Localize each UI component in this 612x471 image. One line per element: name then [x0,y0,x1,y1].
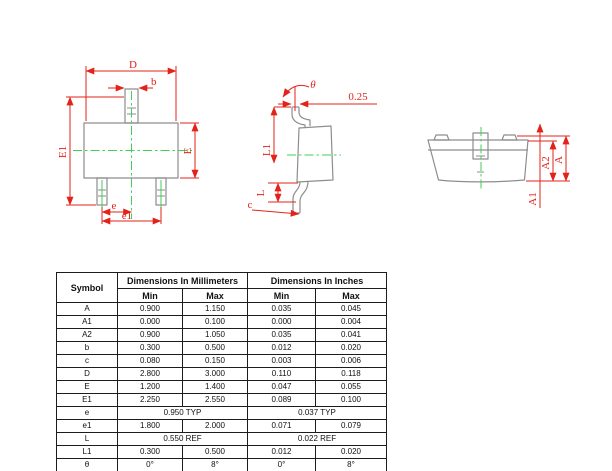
dim-label-theta: θ [310,79,316,91]
table-cell: c [57,355,118,368]
table-row: c0.0800.1500.0030.006 [57,355,387,368]
table-cell: 0.041 [316,329,387,342]
table-cell: 2.800 [118,368,183,381]
table-header-inches: Dimensions In Inches [248,273,387,289]
table-row: e11.8002.0000.0710.079 [57,420,387,433]
table-cell: 0.900 [118,303,183,316]
dim-label-b: b [151,76,157,88]
table-cell: 3.000 [183,368,248,381]
table-cell: 0.089 [248,394,316,407]
table-cell: A1 [57,316,118,329]
table-cell: 0.004 [316,316,387,329]
top-view-centerlines [73,91,192,219]
dim-label-e1: e1 [122,210,132,222]
table-cell: 0.012 [248,342,316,355]
table-cell: 0.118 [316,368,387,381]
dim-label-offset: 0.25 [348,91,368,103]
table-row: L10.3000.5000.0120.020 [57,446,387,459]
dim-L: L [255,183,298,202]
table-row: A20.9001.0500.0350.041 [57,329,387,342]
dim-label-D: D [129,59,137,71]
table-row: A0.9001.1500.0350.045 [57,303,387,316]
table-cell: 0.000 [248,316,316,329]
table-cell: A [57,303,118,316]
table-cell: 0.100 [183,316,248,329]
table-cell: 0.071 [248,420,316,433]
table-cell: 0.500 [183,342,248,355]
table-cell: 0.020 [316,446,387,459]
table-cell: b [57,342,118,355]
table-cell: 0.079 [316,420,387,433]
table-cell: 1.400 [183,381,248,394]
table-cell: 0.550 REF [118,433,248,446]
table-cell: 2.250 [118,394,183,407]
dim-L1: L1 [261,107,291,163]
table-cell: 1.150 [183,303,248,316]
table-cell: 1.800 [118,420,183,433]
table-row: A10.0000.1000.0000.004 [57,316,387,329]
table-cell: L [57,433,118,446]
table-header-in-min: Min [248,289,316,303]
table-cell: 0.020 [316,342,387,355]
dim-offset-025: 0.25 [278,91,377,104]
table-cell: 0.000 [118,316,183,329]
dim-label-E: E [182,147,194,154]
top-view: D b E1 E e [57,59,199,224]
table-cell: 0° [248,459,316,471]
dim-label-L1: L1 [261,144,273,156]
front-view: A1 A2 A [428,124,570,208]
side-view-package-outline [292,107,333,213]
table-cell: θ [57,459,118,471]
table-cell: 0° [118,459,183,471]
table-cell: A2 [57,329,118,342]
dimension-table: Symbol Dimensions In Millimeters Dimensi… [56,272,387,471]
table-cell: 0.035 [248,303,316,316]
dim-E: E [180,123,199,178]
dim-theta: θ [283,79,316,111]
dim-label-A: A [553,156,565,164]
dim-b: b [108,76,157,88]
table-cell: D [57,368,118,381]
table-cell: 0.300 [118,342,183,355]
table-cell: e [57,407,118,420]
table-cell: 8° [183,459,248,471]
dim-label-A1: A1 [527,192,539,205]
table-cell: 0.037 TYP [248,407,387,420]
table-cell: 0.006 [316,355,387,368]
table-cell: 2.000 [183,420,248,433]
table-cell: 0.080 [118,355,183,368]
dim-label-c: c [248,199,253,211]
table-header-in-max: Max [316,289,387,303]
table-cell: E [57,381,118,394]
dim-label-e: e [112,200,117,212]
table-cell: 0.500 [183,446,248,459]
dim-label-E1: E1 [57,146,69,158]
table-cell: 0.950 TYP [118,407,248,420]
dimension-table-body: A0.9001.1500.0350.045A10.0000.1000.0000.… [57,303,387,471]
table-cell: 0.012 [248,446,316,459]
table-row: b0.3000.5000.0120.020 [57,342,387,355]
table-row: E1.2001.4000.0470.055 [57,381,387,394]
table-cell: 1.050 [183,329,248,342]
dim-c: c [248,199,299,214]
dim-label-L: L [255,189,267,196]
table-cell: e1 [57,420,118,433]
table-cell: 2.550 [183,394,248,407]
table-cell: 0.300 [118,446,183,459]
table-cell: 0.055 [316,381,387,394]
table-cell: 0.045 [316,303,387,316]
table-cell: 0.900 [118,329,183,342]
table-cell: L1 [57,446,118,459]
package-outline-page: D b E1 E e [0,0,612,471]
table-row: θ0°8°0°8° [57,459,387,471]
front-view-package-outline [428,133,528,182]
dim-label-A2: A2 [540,156,552,169]
table-cell: 8° [316,459,387,471]
side-view: θ 0.25 L1 L c [248,79,377,214]
table-cell: 0.022 REF [248,433,387,446]
table-row: L0.550 REF0.022 REF [57,433,387,446]
table-cell: E1 [57,394,118,407]
table-cell: 0.003 [248,355,316,368]
table-cell: 0.100 [316,394,387,407]
table-header-millimeters: Dimensions In Millimeters [118,273,248,289]
table-cell: 0.150 [183,355,248,368]
table-row: e0.950 TYP0.037 TYP [57,407,387,420]
table-cell: 1.200 [118,381,183,394]
table-row: E12.2502.5500.0890.100 [57,394,387,407]
table-cell: 0.110 [248,368,316,381]
table-row: D2.8003.0000.1100.118 [57,368,387,381]
table-cell: 0.047 [248,381,316,394]
table-cell: 0.035 [248,329,316,342]
table-header-mm-max: Max [183,289,248,303]
table-header-mm-min: Min [118,289,183,303]
table-header-symbol: Symbol [57,273,118,303]
